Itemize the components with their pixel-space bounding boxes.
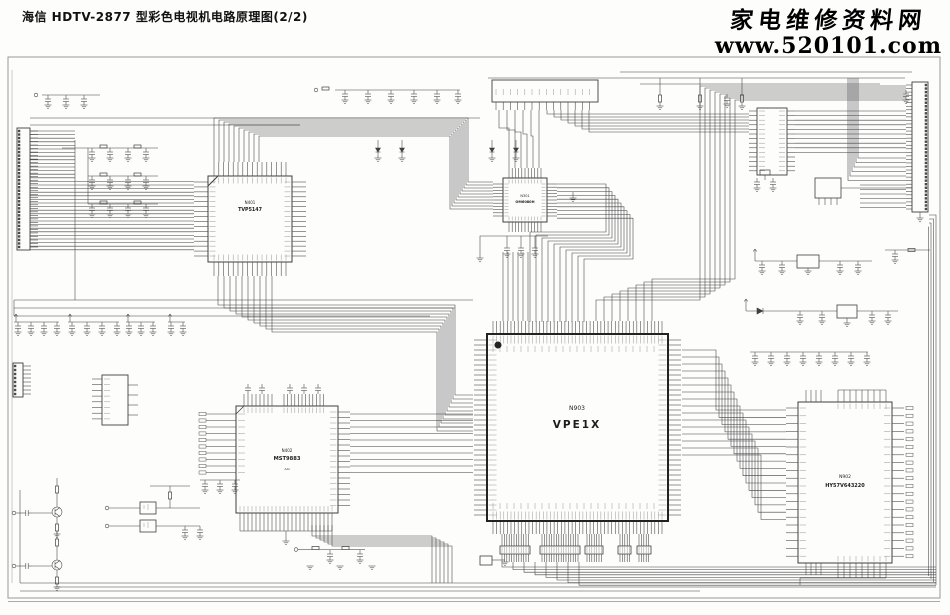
chip-n401-part: TVP5147 bbox=[238, 207, 262, 213]
chip-n902: N902 HY57V643220 bbox=[798, 402, 892, 563]
pin1-dot bbox=[495, 342, 502, 349]
chip-n902-ref: N902 bbox=[839, 474, 851, 480]
chip-n903-ref: N903 bbox=[569, 405, 585, 412]
schematic-canvas: N401 TVP5147 N301 OM6080H N903 VPE1X N40… bbox=[0, 0, 950, 615]
chip-n401: N401 TVP5147 bbox=[208, 176, 292, 262]
chip-n301: N301 OM6080H bbox=[503, 178, 547, 222]
schematic-page: 海信 HDTV-2877 型彩色电视机电路原理图(2/2) 家电维修资料网 ww… bbox=[0, 0, 950, 615]
chip-n301-ref: N301 bbox=[520, 194, 529, 198]
wires-layer bbox=[12, 70, 936, 591]
chip-n402-sub: AAI bbox=[284, 467, 289, 471]
sheet-border bbox=[8, 57, 940, 598]
chip-n402-part: MST9883 bbox=[274, 456, 301, 462]
chip-n301-part: OM6080H bbox=[515, 200, 534, 204]
chip-n402-ref: N402 bbox=[282, 448, 293, 453]
chip-n402: N402 MST9883 AAI bbox=[236, 406, 338, 513]
chip-n903-part: VPE1X bbox=[553, 419, 601, 431]
chip-n902-part: HY57V643220 bbox=[825, 483, 865, 489]
chip-n401-ref: N401 bbox=[245, 200, 256, 205]
chip-n903: N903 VPE1X bbox=[487, 334, 668, 521]
